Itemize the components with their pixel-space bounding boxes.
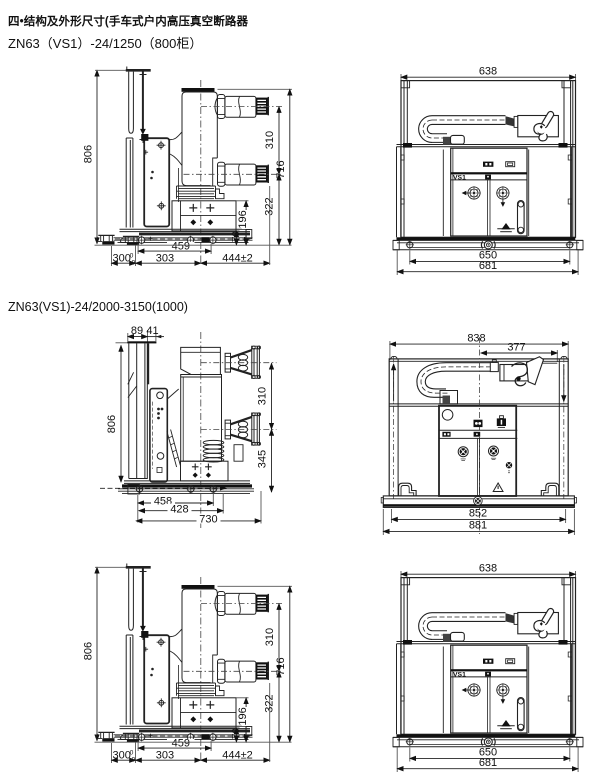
svg-text:881: 881 xyxy=(469,520,487,532)
svg-text:838: 838 xyxy=(467,332,485,344)
svg-text:310: 310 xyxy=(257,387,269,405)
svg-text:345: 345 xyxy=(257,450,269,468)
svg-text:89: 89 xyxy=(131,325,143,337)
svg-text:428: 428 xyxy=(170,503,188,515)
svg-text:41: 41 xyxy=(146,325,158,337)
svg-text:852: 852 xyxy=(469,508,487,520)
svg-text:806: 806 xyxy=(106,415,118,433)
svg-text:730: 730 xyxy=(199,513,217,525)
svg-text:377: 377 xyxy=(507,342,525,354)
